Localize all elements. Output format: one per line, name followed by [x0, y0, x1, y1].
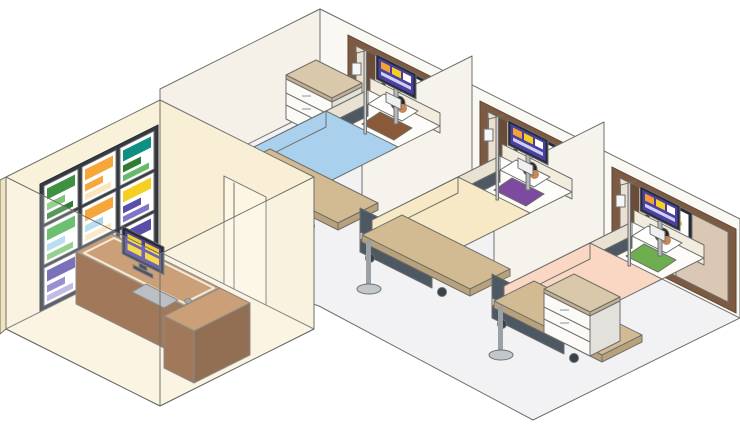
monitor-room-wall-edge: [0, 177, 6, 334]
scene-canvas: [0, 0, 740, 425]
hospital-ward-illustration: [0, 0, 740, 425]
